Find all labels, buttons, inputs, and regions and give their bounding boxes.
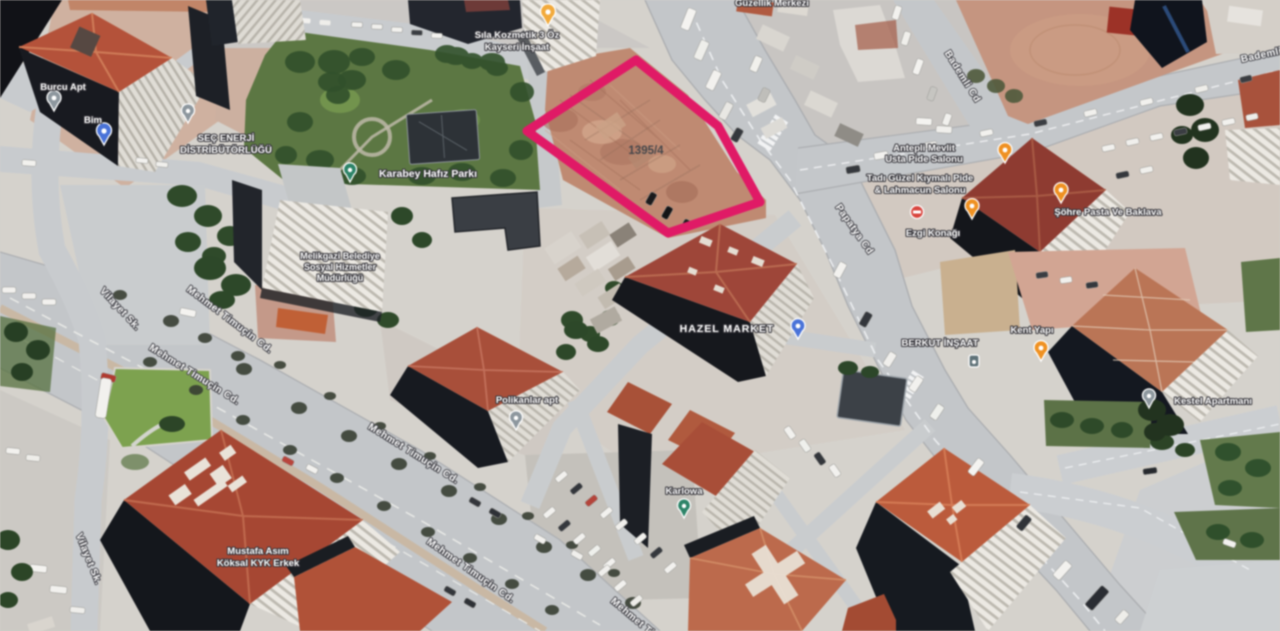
svg-text:Usta Pide Salonu: Usta Pide Salonu <box>885 154 963 165</box>
svg-text:BERKUT İNŞAAT: BERKUT İNŞAAT <box>902 338 979 349</box>
svg-text:Bim: Bim <box>84 115 102 126</box>
svg-text:Melikgazi Belediye: Melikgazi Belediye <box>300 251 380 261</box>
svg-text:Güzellik Merkezi: Güzellik Merkezi <box>735 0 809 9</box>
svg-text:& Lahmacun Salonu: & Lahmacun Salonu <box>874 185 966 196</box>
svg-text:Ezgi Konağı: Ezgi Konağı <box>906 228 960 239</box>
svg-text:DİSTRİBÜTÖRLÜĞÜ: DİSTRİBÜTÖRLÜĞÜ <box>180 144 272 156</box>
svg-text:Antepli Mevlit: Antepli Mevlit <box>893 143 956 154</box>
svg-text:Sosyal Hizmetler: Sosyal Hizmetler <box>304 262 377 272</box>
svg-text:1395/4: 1395/4 <box>628 145 664 157</box>
svg-text:Kestel Apartmanı: Kestel Apartmanı <box>1174 396 1252 407</box>
svg-text:SEÇ ENERJİ: SEÇ ENERJİ <box>198 133 255 144</box>
svg-text:Mustafa Asım: Mustafa Asım <box>227 546 288 557</box>
svg-text:Kayseri İnşaat: Kayseri İnşaat <box>485 42 550 53</box>
svg-text:Burcu Apt: Burcu Apt <box>40 82 86 93</box>
svg-text:Köksal KYK Erkek: Köksal KYK Erkek <box>217 558 300 569</box>
svg-text:Sıla Kozmetik 3 Öz: Sıla Kozmetik 3 Öz <box>475 30 560 41</box>
svg-text:Polikanlar apt: Polikanlar apt <box>496 395 559 406</box>
svg-text:Şöhre Pasta Ve Baklava: Şöhre Pasta Ve Baklava <box>1054 207 1162 218</box>
svg-text:HAZEL MARKET: HAZEL MARKET <box>680 323 775 335</box>
svg-text:Kent Yapı: Kent Yapı <box>1010 325 1053 336</box>
svg-text:Müdürlüğü: Müdürlüğü <box>317 273 364 283</box>
svg-text:Karabey Hafız Parkı: Karabey Hafız Parkı <box>379 168 477 180</box>
svg-text:Tadı Güzel Kıymalı Pide: Tadı Güzel Kıymalı Pide <box>867 173 973 184</box>
svg-text:Karlowa: Karlowa <box>666 486 704 497</box>
